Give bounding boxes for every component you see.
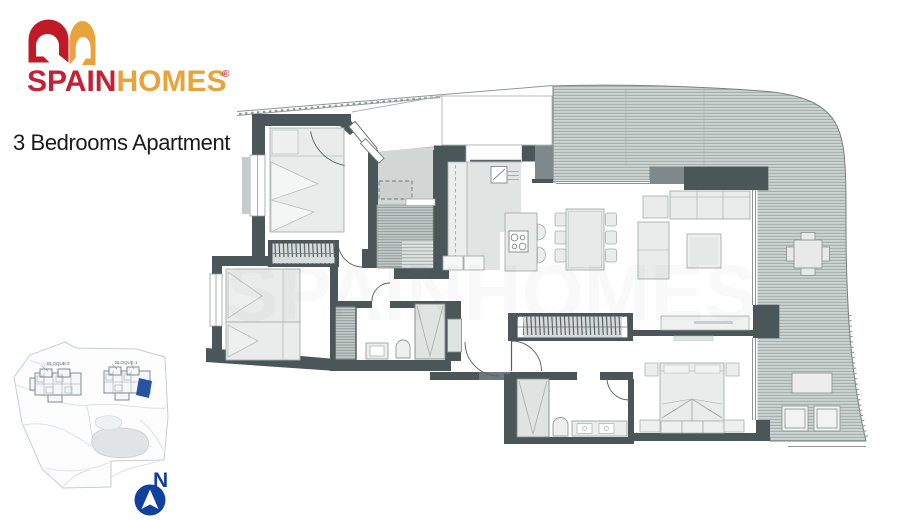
svg-text:3 Bedrooms Apartment: 3 Bedrooms Apartment [13,130,230,155]
svg-text:BLOQUE 2: BLOQUE 2 [47,361,70,366]
svg-text:BLOQUE 1: BLOQUE 1 [115,360,138,365]
svg-text:SPAINHOMES: SPAINHOMES [225,248,757,337]
svg-text:®: ® [222,69,230,80]
svg-text:SPAINHOMES: SPAINHOMES [27,65,226,98]
